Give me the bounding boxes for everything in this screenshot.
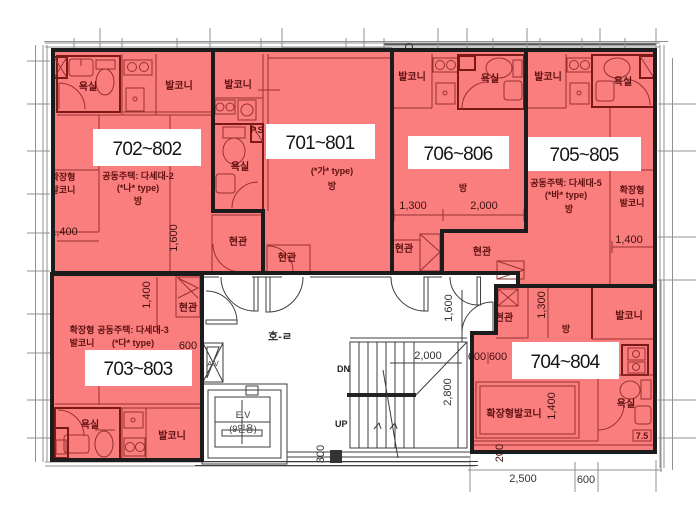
svg-text:600: 600 — [489, 351, 507, 363]
svg-text:P.S: P.S — [250, 125, 263, 135]
svg-text:욕실: 욕실 — [231, 160, 249, 173]
svg-text:702~802: 702~802 — [113, 139, 182, 160]
svg-text:300: 300 — [315, 445, 327, 463]
svg-text:1,600: 1,600 — [443, 294, 455, 322]
svg-text:공동주택: 다세대-2: 공동주택: 다세대-2 — [102, 170, 173, 181]
svg-text:E.V: E.V — [236, 410, 251, 420]
svg-text:방: 방 — [565, 203, 574, 214]
svg-text:1,300: 1,300 — [399, 200, 427, 212]
svg-text:발코니: 발코니 — [70, 337, 95, 348]
svg-text:1,400: 1,400 — [615, 234, 643, 246]
svg-text:확장형발코니: 확장형발코니 — [486, 407, 541, 420]
svg-text:욕실: 욕실 — [481, 72, 499, 85]
svg-text:703~803: 703~803 — [104, 359, 173, 380]
svg-text:(*나* type): (*나* type) — [117, 182, 159, 193]
svg-text:705~805: 705~805 — [550, 145, 619, 166]
svg-text:현관: 현관 — [229, 235, 248, 248]
svg-text:7.5: 7.5 — [636, 431, 649, 441]
svg-text:현관: 현관 — [473, 245, 492, 258]
svg-text:(*가* type): (*가* type) — [311, 165, 353, 176]
svg-text:발코니: 발코니 — [398, 70, 426, 83]
svg-text:발코니: 발코니 — [620, 197, 645, 208]
svg-text:2,500: 2,500 — [509, 473, 537, 485]
svg-text:발코니: 발코니 — [165, 79, 193, 92]
svg-text:1,600: 1,600 — [168, 224, 180, 252]
svg-text:호-ㄹ: 호-ㄹ — [268, 329, 292, 343]
svg-text:2,000: 2,000 — [414, 350, 442, 362]
svg-text:DN: DN — [337, 364, 350, 374]
svg-text:600: 600 — [577, 474, 595, 486]
svg-text:발코니: 발코니 — [534, 70, 562, 83]
svg-text:현관: 현관 — [179, 301, 198, 314]
svg-text:704~804: 704~804 — [531, 352, 601, 373]
svg-text:확장형: 확장형 — [70, 324, 95, 335]
svg-text:A.V: A.V — [207, 361, 219, 368]
svg-text:(9인용): (9인용) — [229, 424, 257, 434]
svg-text:701~801: 701~801 — [286, 133, 355, 154]
svg-text:1,400: 1,400 — [141, 281, 153, 309]
svg-text:방: 방 — [459, 182, 468, 193]
svg-text:욕실: 욕실 — [79, 80, 97, 93]
svg-text:공동주택: 다세대-3: 공동주택: 다세대-3 — [97, 324, 168, 335]
svg-text:1,400: 1,400 — [546, 392, 558, 420]
svg-text:UP: UP — [335, 419, 348, 429]
svg-text:욕실: 욕실 — [617, 397, 635, 410]
svg-text:(*다* type): (*다* type) — [112, 337, 154, 348]
svg-text:2,800: 2,800 — [442, 378, 454, 406]
svg-text:욕실: 욕실 — [81, 418, 99, 431]
svg-text:방: 방 — [328, 180, 337, 191]
svg-text:현관: 현관 — [278, 251, 297, 264]
svg-text:욕실: 욕실 — [614, 75, 632, 88]
svg-text:현관: 현관 — [395, 242, 414, 255]
svg-text:발코니: 발코니 — [615, 309, 643, 322]
svg-text:발코니: 발코니 — [224, 78, 252, 91]
svg-text:706~806: 706~806 — [424, 144, 493, 165]
svg-text:발코니: 발코니 — [158, 429, 186, 442]
svg-text:1,300: 1,300 — [536, 291, 548, 319]
svg-text:방: 방 — [562, 323, 571, 334]
svg-text:(*바* type): (*바* type) — [545, 189, 587, 200]
svg-text:2,000: 2,000 — [470, 200, 498, 212]
svg-text:방: 방 — [134, 195, 143, 206]
svg-text:확장형: 확장형 — [620, 184, 645, 195]
svg-text:공동주택: 다세대-5: 공동주택: 다세대-5 — [530, 177, 601, 188]
